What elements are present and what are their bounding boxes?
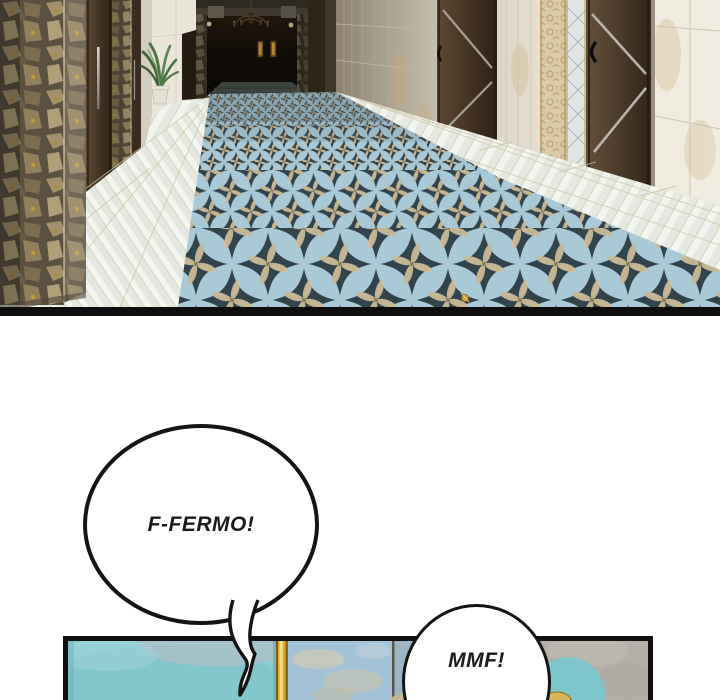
- panel1-bottom-border: [0, 307, 720, 316]
- room-panel: [63, 636, 653, 700]
- speech-bubble-tail: [208, 590, 282, 700]
- speech-bubble-mmf: MMF!: [402, 604, 551, 700]
- wall-sconce-left: [207, 20, 212, 27]
- corridor-end: [196, 0, 340, 100]
- wall-sconce-right: [289, 21, 294, 28]
- room-panel-art: [68, 641, 648, 700]
- speech-text-mmf: MMF!: [448, 649, 505, 672]
- door-handle: [97, 47, 100, 109]
- hall-door-far-left: [182, 30, 196, 100]
- mosaic-pillar-front: [0, 0, 86, 311]
- hall-door-mid-left: [132, 0, 141, 174]
- wall-seam: [392, 641, 395, 700]
- comic-page: MMF! F-FERMO!: [0, 0, 720, 700]
- hall-door-near-left: [86, 0, 112, 196]
- hall-door-near-right: [586, 0, 655, 190]
- speech-bubble-fermo: F-FERMO!: [83, 424, 319, 625]
- hallway-panel: [0, 0, 720, 316]
- ornate-column: [540, 0, 566, 168]
- speech-text-fermo: F-FERMO!: [148, 513, 255, 536]
- blue-wall: [288, 641, 392, 700]
